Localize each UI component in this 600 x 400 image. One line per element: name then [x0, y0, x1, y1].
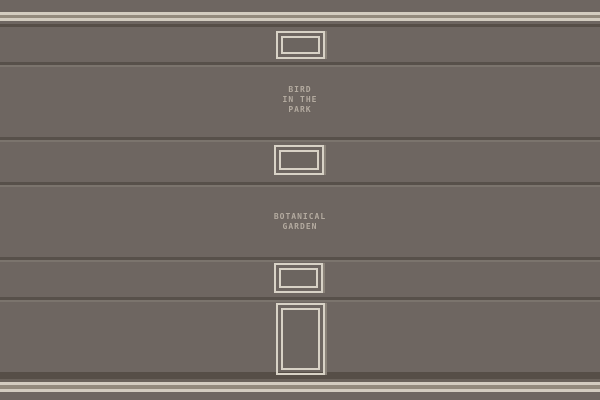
- artwork-title-bird-in-the-park: BIRD IN THE PARK: [250, 85, 350, 115]
- bottom-trim-light-line-2: [0, 389, 600, 392]
- empty-picture-frame-2[interactable]: [274, 145, 324, 175]
- picture-frame-3-interior: [279, 268, 318, 288]
- empty-picture-frame-1[interactable]: [276, 31, 325, 59]
- panel-groove-3-highlight: [0, 185, 600, 187]
- empty-picture-frame-3[interactable]: [274, 263, 323, 293]
- picture-frame-4-interior: [281, 308, 320, 370]
- title-line: PARK: [250, 105, 350, 115]
- panel-groove-2-highlight: [0, 140, 600, 142]
- picture-frame-1-interior: [281, 36, 320, 54]
- top-trim-shadow-line: [0, 24, 600, 27]
- title-line: BIRD: [250, 85, 350, 95]
- top-trim-light-line-2: [0, 18, 600, 21]
- panel-groove-4-highlight: [0, 260, 600, 262]
- title-line: GARDEN: [250, 222, 350, 232]
- panel-groove-1-highlight: [0, 65, 600, 67]
- panel-groove-5-highlight: [0, 300, 600, 302]
- empty-picture-frame-4[interactable]: [276, 303, 325, 375]
- picture-frame-2-interior: [279, 150, 319, 170]
- gallery-wall-scene: BIRD IN THE PARK BOTANICAL GARDEN: [0, 0, 600, 400]
- title-line: IN THE: [250, 95, 350, 105]
- artwork-title-botanical-garden: BOTANICAL GARDEN: [250, 212, 350, 232]
- title-line: BOTANICAL: [250, 212, 350, 222]
